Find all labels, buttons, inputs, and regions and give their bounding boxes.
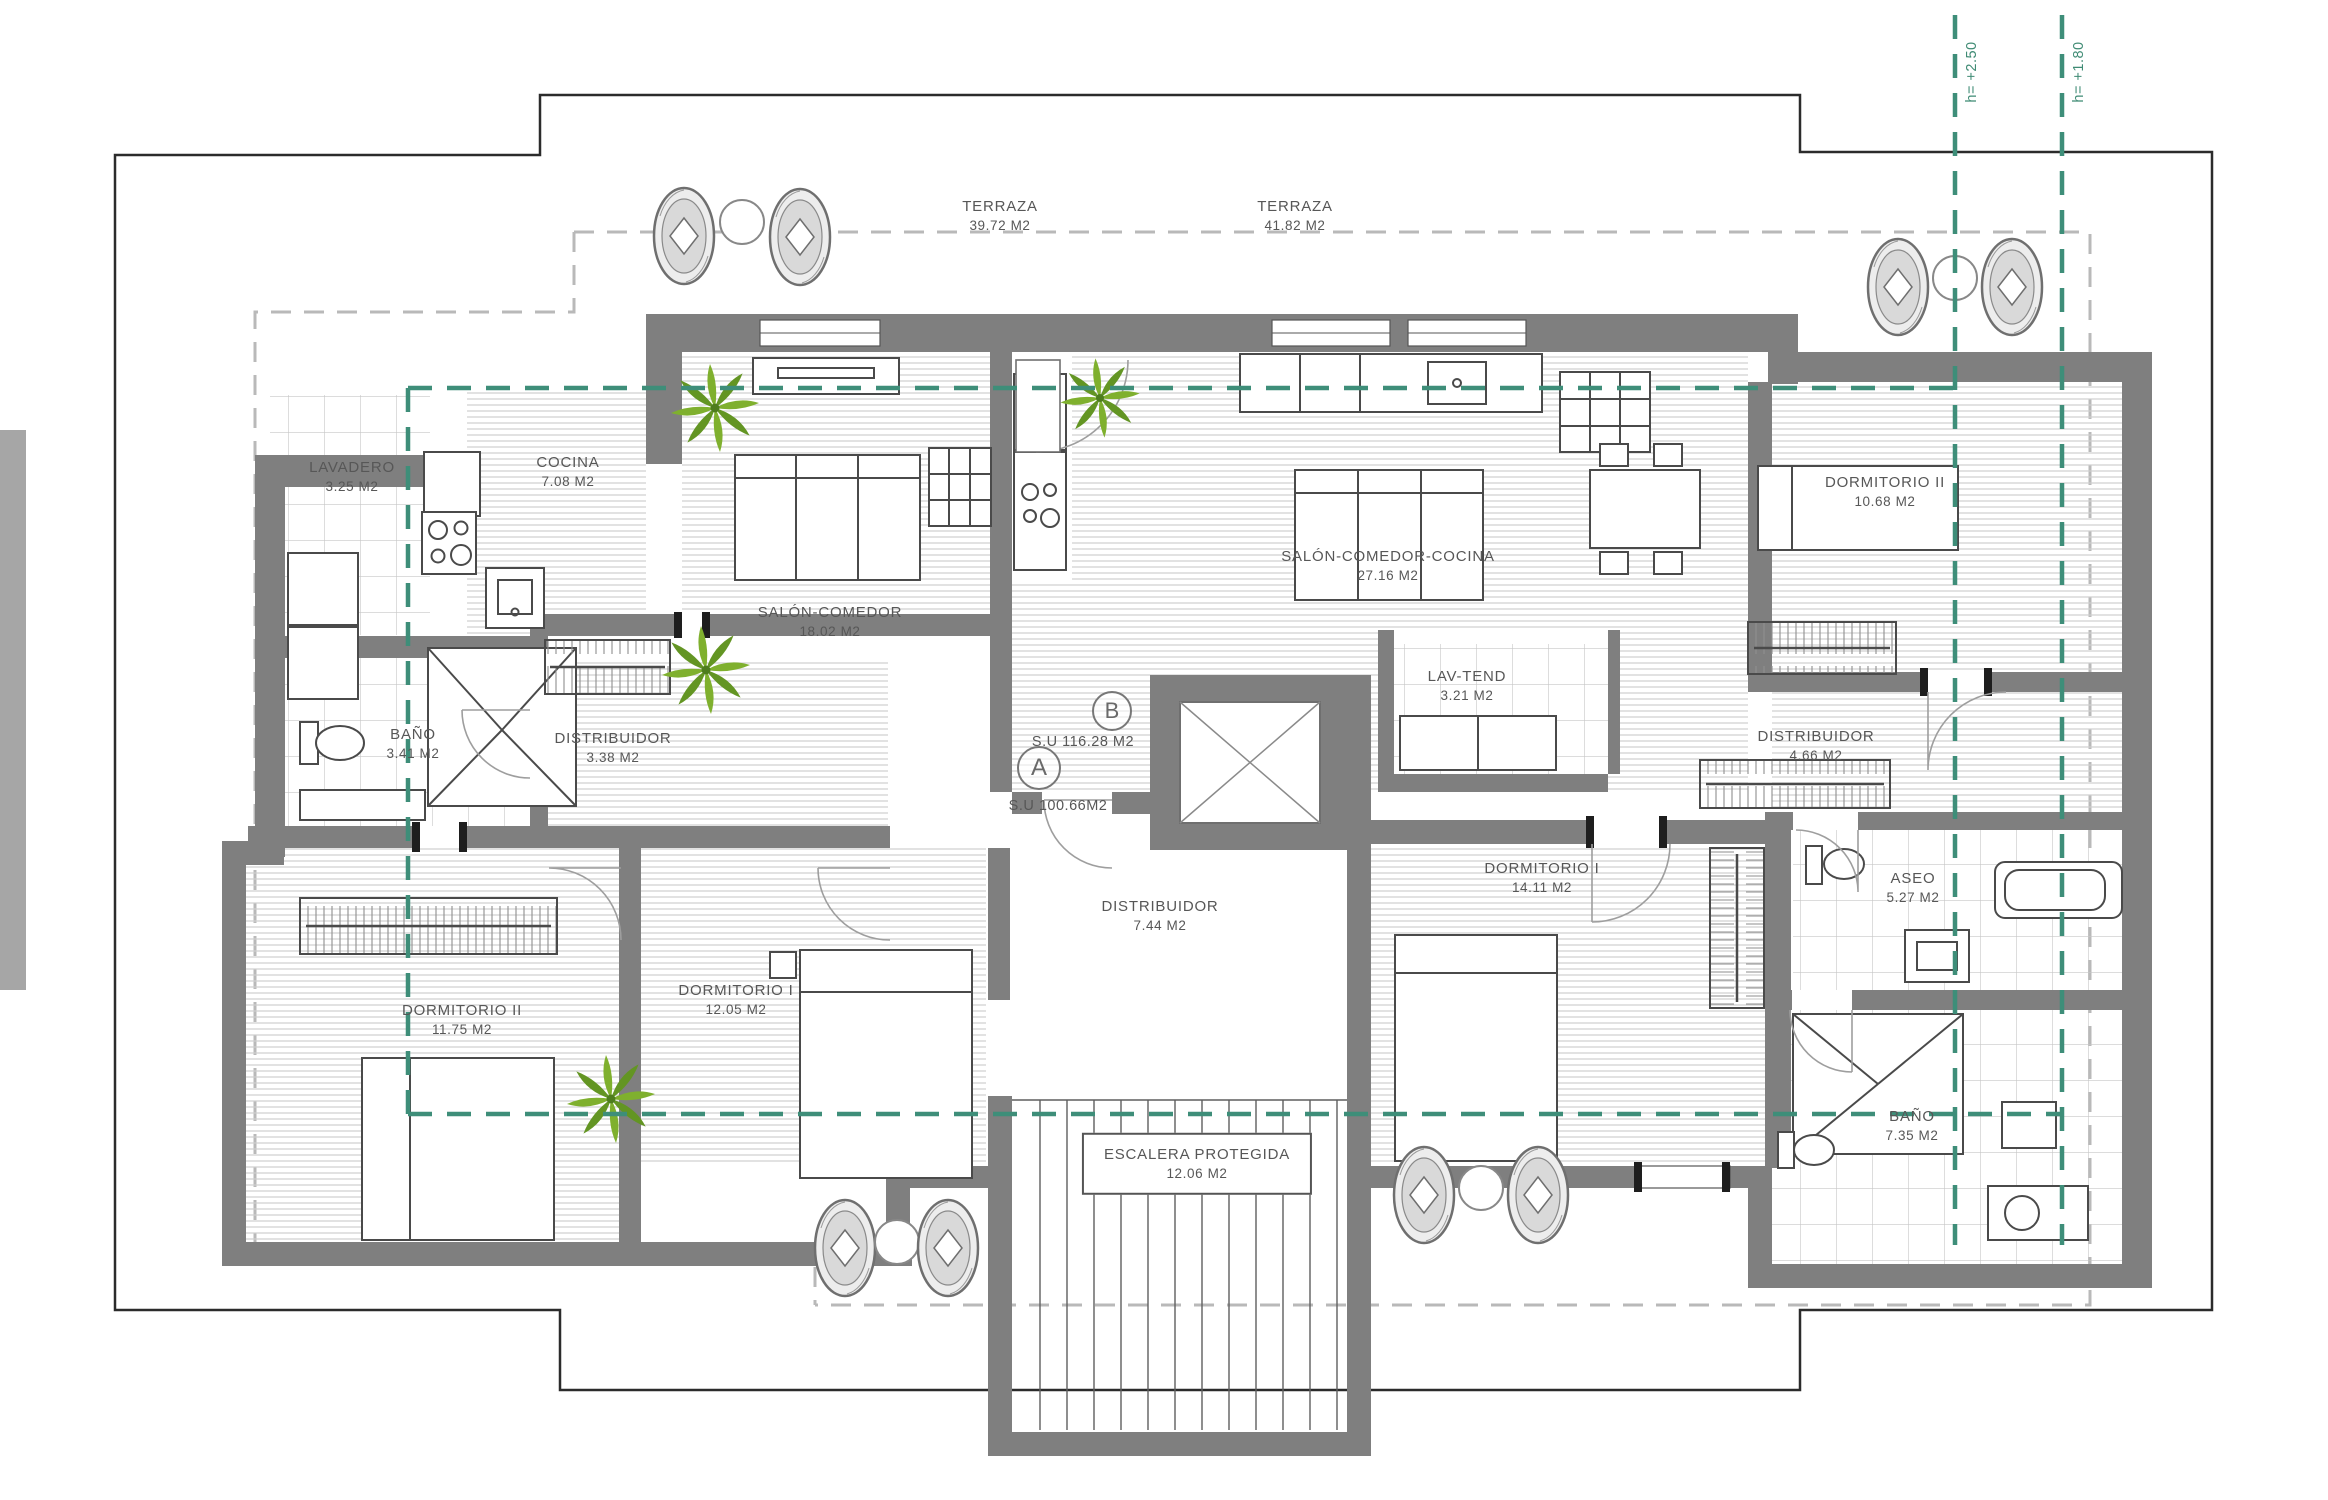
room-area: 3.38 M2 — [587, 749, 640, 767]
wardrobe-dorm2-b — [1748, 622, 1896, 674]
room-label-terraza-b: TERRAZA 41.82 M2 — [1257, 197, 1333, 235]
room-area: 18.02 M2 — [799, 623, 860, 641]
sink-b — [2002, 1102, 2056, 1148]
unit-b-letter: B — [1105, 698, 1120, 724]
wardrobe-dorm2-a — [300, 898, 557, 954]
bed-dorm1-b — [1395, 935, 1557, 1161]
room-label-cocina: COCINA 7.08 M2 — [536, 453, 599, 491]
closet-hall-a — [545, 640, 670, 694]
room-name: BAÑO — [1889, 1107, 1935, 1127]
unit-a-badge: A — [1017, 746, 1061, 790]
bed-dorm2-a — [362, 1058, 554, 1240]
stove-a — [422, 512, 476, 574]
room-area: 4.66 M2 — [1790, 747, 1843, 765]
kitchen-counter-b — [1240, 354, 1542, 412]
room-label-dormitorio1-b: DORMITORIO I 14.11 M2 — [1484, 859, 1599, 897]
room-label-dormitorio2-a: DORMITORIO II 11.75 M2 — [402, 1001, 522, 1039]
room-label-distribuidor-core: DISTRIBUIDOR 7.44 M2 — [1101, 897, 1218, 935]
room-area: 7.44 M2 — [1134, 917, 1187, 935]
room-area: 12.06 M2 — [1166, 1165, 1227, 1183]
left-boundary-wall — [0, 430, 26, 990]
room-area: 7.35 M2 — [1886, 1127, 1939, 1145]
room-area: 12.05 M2 — [705, 1001, 766, 1019]
room-name: LAVADERO — [309, 458, 395, 478]
room-area: 39.72 M2 — [969, 217, 1030, 235]
unit-b-badge: B — [1092, 691, 1132, 731]
washer-a — [288, 553, 358, 699]
sofa-a — [735, 455, 920, 580]
room-area: 3.41 M2 — [387, 745, 440, 763]
room-label-lavtend-b: LAV-TEND 3.21 M2 — [1428, 667, 1507, 705]
room-area: 7.08 M2 — [542, 473, 595, 491]
room-label-salon-b: SALÓN-COMEDOR-COCINA 27.16 M2 — [1281, 547, 1495, 585]
washers-b — [1400, 716, 1556, 770]
room-name: DISTRIBUIDOR — [1101, 897, 1218, 917]
shelf-grid-b — [1560, 372, 1650, 452]
room-label-escalera: ESCALERA PROTEGIDA 12.06 M2 — [1082, 1133, 1312, 1195]
room-label-bano-a: BAÑO 3.41 M2 — [387, 725, 440, 763]
room-area: 41.82 M2 — [1264, 217, 1325, 235]
room-label-terraza-a: TERRAZA 39.72 M2 — [962, 197, 1038, 235]
unit-b-surface: S.U 116.28 M2 — [1032, 734, 1134, 750]
room-area: 10.68 M2 — [1854, 493, 1915, 511]
room-label-aseo-b: ASEO 5.27 M2 — [1887, 869, 1940, 907]
elevator — [1150, 675, 1350, 850]
room-area: 11.75 M2 — [432, 1021, 492, 1039]
floor-plan-page: TERRAZA 39.72 M2 TERRAZA 41.82 M2 LAVADE… — [0, 0, 2328, 1500]
room-area: 5.27 M2 — [1887, 889, 1940, 907]
room-name: DISTRIBUIDOR — [554, 729, 671, 749]
room-name: SALÓN-COMEDOR-COCINA — [1281, 547, 1495, 567]
washer-bath-b — [1988, 1186, 2088, 1240]
room-area: 14.11 M2 — [1512, 879, 1572, 897]
shelf-grid-a — [929, 448, 991, 526]
room-name: BAÑO — [390, 725, 436, 745]
room-name: DORMITORIO II — [1825, 473, 1945, 493]
room-label-dormitorio2-b: DORMITORIO II 10.68 M2 — [1825, 473, 1945, 511]
room-name: DORMITORIO I — [1484, 859, 1599, 879]
room-name: LAV-TEND — [1428, 667, 1507, 687]
room-area: 3.25 M2 — [326, 478, 379, 496]
room-area: 27.16 M2 — [1357, 567, 1418, 585]
room-name: DORMITORIO I — [678, 981, 793, 1001]
room-name: COCINA — [536, 453, 599, 473]
closet-dorm1-b — [1710, 848, 1764, 1008]
bed-dorm1-a — [770, 950, 972, 1178]
room-name: TERRAZA — [1257, 197, 1333, 217]
room-area: 3.21 M2 — [1441, 687, 1494, 705]
room-label-distribuidor-a: DISTRIBUIDOR 3.38 M2 — [554, 729, 671, 767]
toilet-a — [300, 722, 364, 764]
height-mark-180: h= +1.80 — [2071, 41, 2087, 102]
room-name: TERRAZA — [962, 197, 1038, 217]
bathtub-aseo — [1995, 862, 2122, 918]
kitchen-counter-a — [424, 452, 480, 516]
room-label-bano-b: BAÑO 7.35 M2 — [1886, 1107, 1939, 1145]
height-mark-250: h= +2.50 — [1964, 41, 1980, 102]
room-name: DORMITORIO II — [402, 1001, 522, 1021]
vanity-aseo — [1905, 930, 1969, 982]
room-label-salon-a: SALÓN-COMEDOR 18.02 M2 — [758, 603, 903, 641]
room-name: DISTRIBUIDOR — [1757, 727, 1874, 747]
toilet-b — [1778, 1132, 1834, 1168]
room-label-lavadero: LAVADERO 3.25 M2 — [309, 458, 395, 496]
room-name: SALÓN-COMEDOR — [758, 603, 903, 623]
sink-a — [486, 568, 544, 628]
unit-a-letter: A — [1031, 754, 1047, 782]
wardrobe-hall-b — [1700, 760, 1890, 808]
room-name: ASEO — [1891, 869, 1936, 889]
room-label-dormitorio1-a: DORMITORIO I 12.05 M2 — [678, 981, 793, 1019]
room-label-distribuidor-b: DISTRIBUIDOR 4.66 M2 — [1757, 727, 1874, 765]
room-name: ESCALERA PROTEGIDA — [1104, 1145, 1290, 1165]
floor-plan-drawing — [0, 0, 2328, 1500]
unit-a-surface: S.U 100.66M2 — [1009, 798, 1108, 814]
